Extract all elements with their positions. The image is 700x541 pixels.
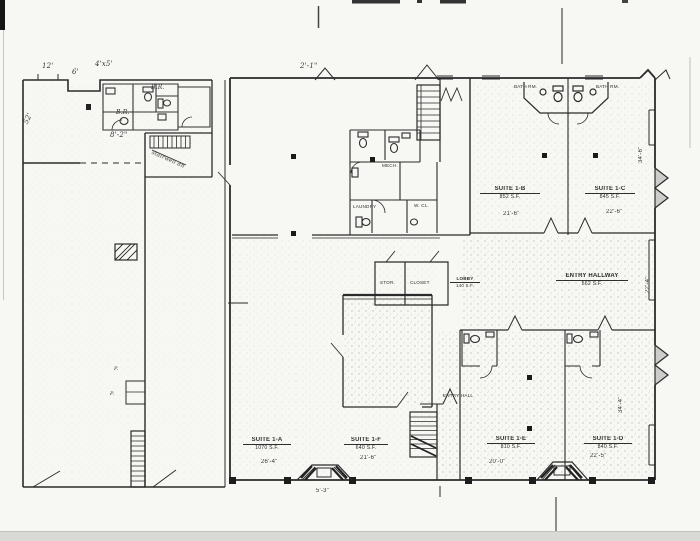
dim-34-4-right: 34'-4" bbox=[618, 397, 625, 413]
hand-dim-4x5: 4'x5' bbox=[95, 60, 113, 68]
suite-area: 852 S.F. bbox=[480, 195, 540, 201]
entry-hallway-label: ENTRY HALLWAY 562 S.F. bbox=[556, 273, 628, 288]
mech-label: MECH. bbox=[382, 163, 398, 168]
closet-label: CLOSET bbox=[410, 280, 430, 285]
dim-20-0-bottom: 20'-0" bbox=[489, 459, 505, 466]
room-name: LOBBY bbox=[450, 276, 480, 283]
room-area: 140 S.F. bbox=[450, 283, 480, 288]
suite-area: 840 S.F. bbox=[584, 445, 632, 451]
suite-1e-label: SUITE 1-E 810 S.F. bbox=[487, 436, 535, 451]
dim-21-6-top: 21'-6" bbox=[503, 211, 519, 218]
suite-area: 640 S.F. bbox=[344, 446, 388, 452]
dim-5-3-porch: 5'-3" bbox=[316, 488, 329, 495]
bay-windows bbox=[655, 168, 668, 385]
suite-1c-label: SUITE 1-C 845 S.F. bbox=[585, 186, 635, 201]
suite-area: 810 S.F. bbox=[487, 445, 535, 451]
laundry-label: LAUNDRY bbox=[353, 204, 376, 209]
stor-label: STOR. bbox=[380, 280, 395, 285]
hand-dim-8-2: 8'-2" bbox=[110, 131, 127, 139]
wcl-label: W. CL. bbox=[414, 203, 429, 208]
bath-mech-cluster bbox=[350, 130, 437, 235]
suite-1a-label: SUITE 1-A 1070 S.F. bbox=[243, 437, 291, 452]
dim-22-5-bottom: 22'-5" bbox=[590, 453, 606, 460]
bathroom-left-label: BATH RM. bbox=[514, 84, 537, 89]
lobby-label: LOBBY 140 S.F. bbox=[450, 276, 480, 288]
suite-1f-label: SUITE 1-F 640 S.F. bbox=[344, 437, 388, 452]
dim-21-6-bottom: 21'-6" bbox=[360, 455, 376, 462]
dim-26-4-bottom: 26'-4" bbox=[261, 459, 277, 466]
suite-1b-label: SUITE 1-B 852 S.F. bbox=[480, 186, 540, 201]
hand-dim-12: 12' bbox=[42, 62, 53, 70]
hand-dim-6: 6' bbox=[72, 68, 79, 76]
suite-1d-label: SUITE 1-D 840 S.F. bbox=[584, 436, 632, 451]
hand-note-p-2: P. bbox=[110, 392, 114, 398]
hand-note-br-1: B.R. bbox=[151, 85, 165, 92]
scanned-floorplan-page: SUITE 1-B 852 S.F. SUITE 1-C 845 S.F. EN… bbox=[0, 0, 700, 541]
dim-34-6-right: 34'-6" bbox=[638, 147, 645, 163]
bathroom-right-label: BATH RM. bbox=[596, 84, 619, 89]
hand-dim-2-1: 2'-1" bbox=[300, 62, 317, 70]
suite-area: 1070 S.F. bbox=[243, 446, 291, 452]
suite-area: 845 S.F. bbox=[585, 195, 635, 201]
entry-hall-label: ENTRY HALL bbox=[443, 393, 473, 398]
dim-22-6-top: 22'-6" bbox=[606, 209, 622, 216]
hand-note-br-2: B.R. bbox=[116, 110, 130, 117]
suite-area: 562 S.F. bbox=[556, 282, 628, 288]
dim-22-4-right: 22'-4" bbox=[645, 277, 652, 293]
hand-note-p-1: P. bbox=[114, 367, 118, 373]
